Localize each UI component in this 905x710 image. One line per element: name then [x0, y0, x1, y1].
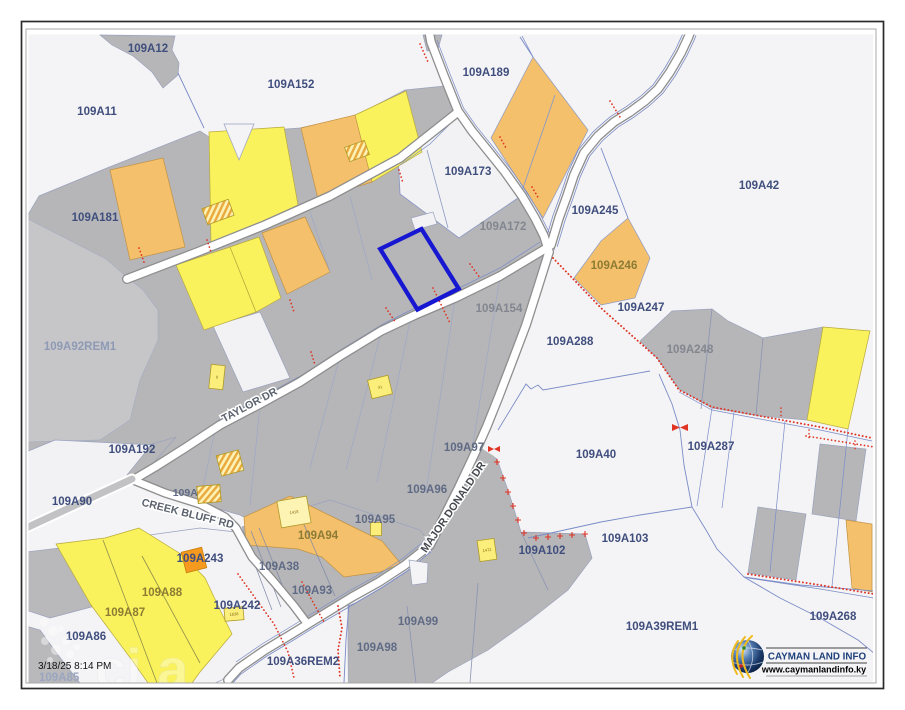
svg-text:109A152: 109A152 [268, 79, 315, 91]
svg-text:109A98: 109A98 [357, 642, 398, 654]
svg-text:109A11: 109A11 [77, 106, 117, 118]
svg-text:109A247: 109A247 [618, 302, 665, 314]
svg-text:109A42: 109A42 [739, 180, 779, 192]
svg-text:109A93: 109A93 [292, 585, 332, 597]
svg-text:109A173: 109A173 [445, 166, 492, 178]
svg-text:CAYMAN LAND INFO: CAYMAN LAND INFO [768, 652, 867, 663]
svg-text:109A181: 109A181 [72, 212, 119, 224]
svg-text:109A242: 109A242 [214, 600, 261, 612]
svg-text:109A39REM1: 109A39REM1 [626, 621, 699, 633]
svg-text:109A96: 109A96 [407, 484, 447, 496]
svg-text:109A95: 109A95 [355, 514, 396, 526]
svg-text:109A245: 109A245 [572, 205, 619, 217]
svg-text:109A87: 109A87 [105, 607, 145, 619]
svg-text:109A189: 109A189 [463, 67, 510, 79]
svg-text:109A85: 109A85 [39, 672, 80, 684]
svg-text:109A287: 109A287 [688, 441, 735, 453]
svg-text:109A88: 109A88 [142, 587, 183, 599]
svg-text:109A154: 109A154 [476, 303, 523, 315]
svg-text:3/18/25 8:14 PM: 3/18/25 8:14 PM [38, 661, 111, 672]
svg-text:109A192: 109A192 [109, 444, 156, 456]
svg-text:109A246: 109A246 [591, 260, 638, 272]
svg-text:109A38: 109A38 [259, 561, 300, 573]
svg-text:109A36REM2: 109A36REM2 [267, 656, 339, 668]
svg-text:109A94: 109A94 [298, 530, 339, 542]
svg-text:109A92REM1: 109A92REM1 [44, 341, 117, 353]
svg-text:109A103: 109A103 [602, 533, 649, 545]
svg-text:109A40: 109A40 [576, 449, 616, 461]
svg-text:109A12: 109A12 [128, 43, 168, 55]
svg-text:www.caymanlandinfo.ky: www.caymanlandinfo.ky [761, 665, 866, 675]
svg-text:109A90: 109A90 [52, 496, 92, 508]
svg-text:109A99: 109A99 [398, 616, 438, 628]
svg-text:109A97: 109A97 [444, 442, 484, 454]
svg-text:109A172: 109A172 [480, 221, 527, 233]
svg-text:109A288: 109A288 [547, 336, 594, 348]
svg-text:109A268: 109A268 [810, 611, 857, 623]
svg-text:109A248: 109A248 [667, 344, 714, 356]
svg-text:109A243: 109A243 [177, 553, 224, 565]
svg-text:109A102: 109A102 [519, 545, 566, 557]
